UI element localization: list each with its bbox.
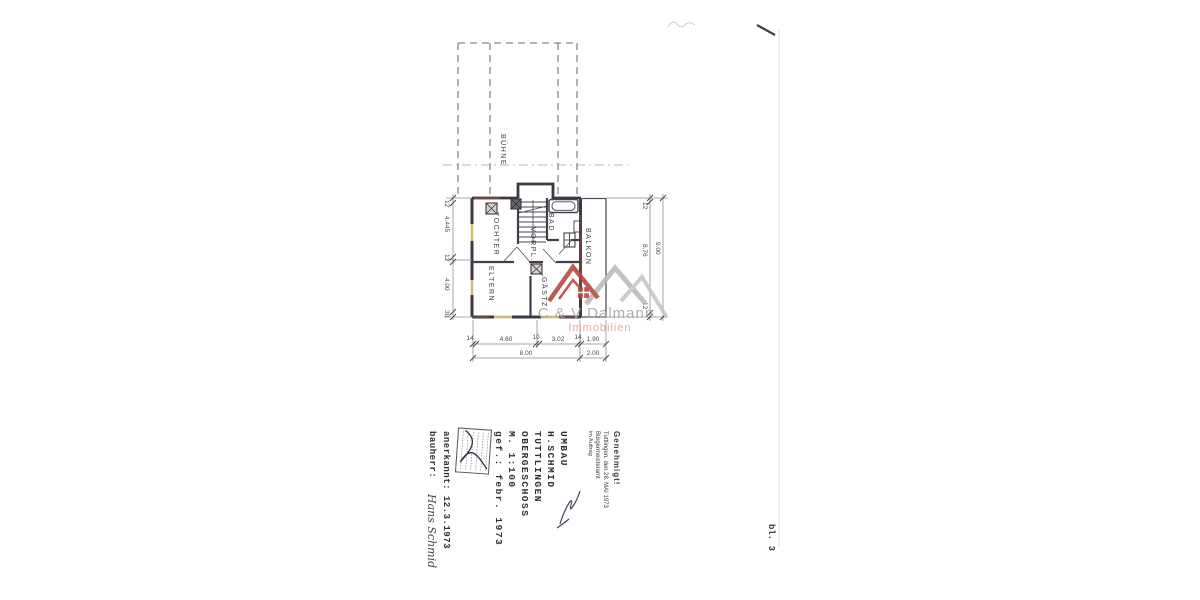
title-drawn-date: gef.: febr. 1973	[493, 431, 504, 546]
dim-bottom-4: 14	[574, 334, 582, 341]
watermark-subtitle: Immobilien	[568, 322, 631, 334]
watermark-company-name: C & V Dalmann	[538, 305, 654, 322]
title-scale: M. 1:100	[506, 431, 517, 489]
sheet-number: bl. 3	[766, 524, 776, 551]
dim-left-3: 4.00	[443, 278, 450, 291]
owner-signature: Hans Schmid	[425, 493, 438, 568]
dim-bottom-total-0: 8.00	[520, 350, 533, 357]
washbasin	[564, 221, 581, 247]
scanned-floor-plan-page: BÜHNE	[0, 0, 1200, 600]
dim-left-2: 12	[443, 254, 450, 262]
dim-bottom-5: 1.90	[587, 336, 600, 343]
title-city: TUTTLINGEN	[532, 431, 543, 503]
dim-bottom-1: 4.60	[500, 336, 513, 343]
bathtub	[549, 200, 578, 213]
floor-plan-drawing: BÜHNE	[0, 0, 1200, 600]
dim-left-4: 30	[443, 310, 450, 318]
room-label-parents: ELTERN	[487, 266, 494, 302]
room-label-balcony: BALKON	[584, 228, 591, 265]
room-label-bath: BAD	[547, 213, 554, 232]
title-owner-label: bauherr:	[427, 431, 437, 478]
stamp-pen-scribble	[460, 430, 490, 469]
dim-right-1: 8.76	[641, 244, 648, 257]
approval-office: Bürgermeisteramt	[594, 431, 600, 479]
attic-dashed-outline	[458, 43, 577, 197]
title-approved-date: anerkannt: 12.3.1973	[441, 431, 451, 549]
approval-signature-scribble	[557, 491, 580, 528]
dim-bottom-0: 14	[466, 335, 474, 342]
room-label-hall: VORPL.	[529, 227, 536, 262]
dimension-labels-left: 12 4.445 12 4.00 30	[443, 200, 450, 318]
dim-left-0: 12	[443, 200, 450, 208]
pencil-scribble	[668, 22, 695, 27]
dim-left-1: 4.445	[443, 216, 450, 233]
approval-date-line: Tuttlingen, den 28. MAI 1973	[602, 431, 608, 508]
title-client: H.SCHMID	[545, 431, 556, 489]
title-floor: OBERGESCHOSS	[519, 431, 530, 517]
room-label-attic: BÜHNE	[499, 134, 507, 166]
approval-im-auftrag: im Auftrag	[587, 431, 593, 456]
dim-bottom-total-1: 2.00	[587, 350, 600, 357]
dim-bottom-2: 10	[532, 334, 540, 341]
scan-artifacts	[668, 22, 779, 546]
approval-title: Genehmigt!	[612, 431, 621, 485]
corner-fold-mark	[757, 25, 775, 35]
title-project: UMBAU	[558, 431, 569, 467]
room-label-daughter: TOCHTER	[492, 212, 499, 256]
review-stamp	[456, 428, 492, 474]
title-block: UMBAU H.SCHMID TUTTLINGEN OBERGESCHOSS M…	[425, 431, 569, 568]
dim-right-total: 9.00	[654, 242, 661, 255]
dim-bottom-3: 3.02	[552, 336, 565, 343]
dim-right-0: 12	[641, 202, 648, 210]
